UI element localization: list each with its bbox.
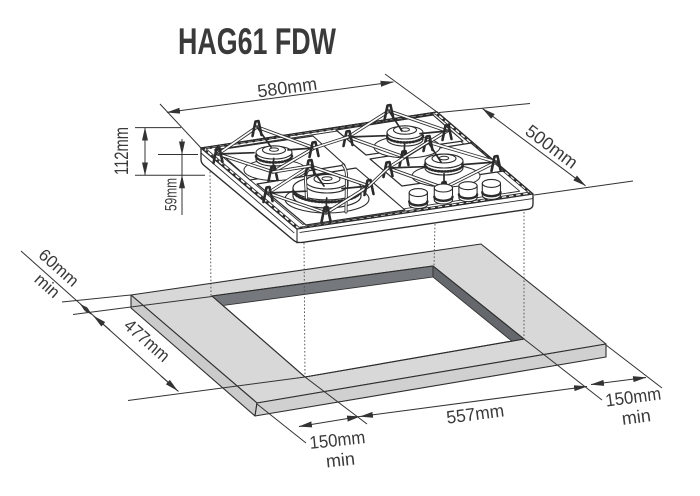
svg-text:150mm: 150mm: [308, 427, 366, 453]
svg-text:112mm: 112mm: [112, 127, 133, 175]
svg-text:59mm: 59mm: [163, 178, 181, 211]
svg-text:min: min: [621, 405, 652, 429]
svg-text:min: min: [325, 449, 356, 472]
svg-text:HAG61 FDW: HAG61 FDW: [178, 21, 336, 62]
svg-text:500mm: 500mm: [522, 121, 582, 173]
svg-text:580mm: 580mm: [256, 74, 318, 102]
